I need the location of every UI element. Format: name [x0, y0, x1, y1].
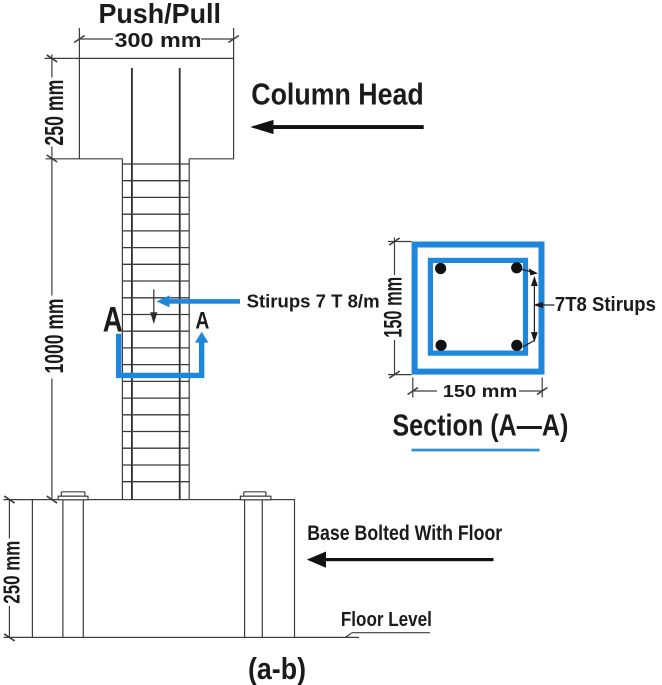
svg-text:150 mm: 150 mm	[443, 381, 518, 401]
svg-text:Base Bolted With Floor: Base Bolted With Floor	[307, 521, 503, 545]
svg-text:A: A	[103, 300, 123, 339]
svg-text:A: A	[195, 308, 209, 335]
svg-text:250 mm: 250 mm	[0, 541, 24, 604]
svg-text:1000 mm: 1000 mm	[39, 299, 69, 374]
svg-text:(a-b): (a-b)	[248, 651, 306, 685]
svg-text:Floor Level: Floor Level	[341, 609, 432, 631]
svg-text:Column Head: Column Head	[251, 77, 424, 112]
svg-text:Stirups 7 T 8/m: Stirups 7 T 8/m	[247, 291, 380, 312]
svg-text:7T8 Stirups: 7T8 Stirups	[555, 294, 656, 316]
svg-text:150 mm: 150 mm	[380, 277, 408, 338]
svg-text:Push/Pull: Push/Pull	[98, 0, 221, 29]
svg-text:250 mm: 250 mm	[39, 80, 69, 146]
svg-text:300 mm: 300 mm	[115, 30, 202, 52]
svg-text:Section (A—A): Section (A—A)	[392, 408, 568, 443]
